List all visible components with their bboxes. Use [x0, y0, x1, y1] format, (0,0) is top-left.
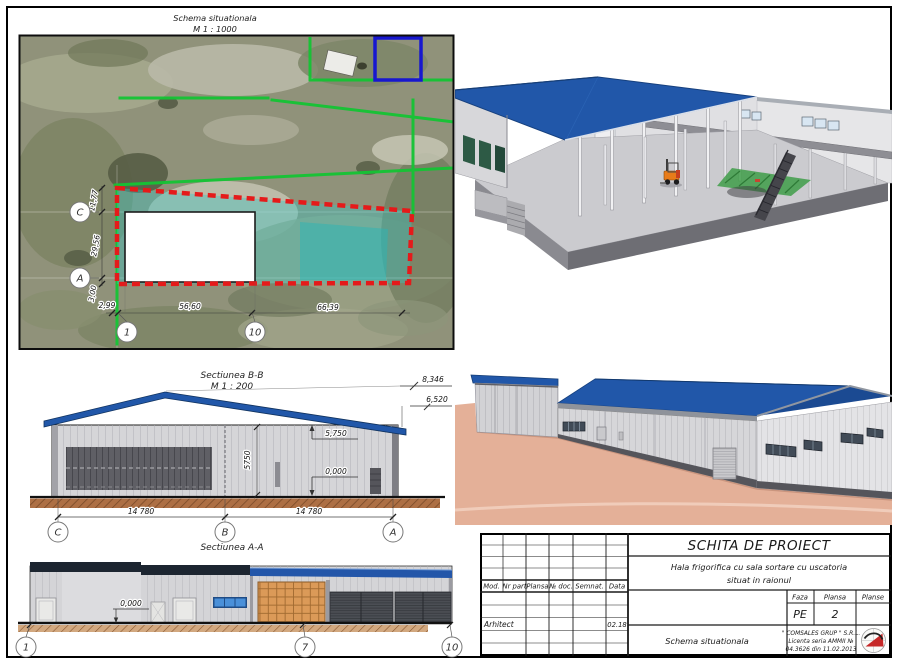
- section-bb-drawing: [30, 392, 445, 508]
- col-header: Mod.: [483, 583, 500, 591]
- date-value: 02.18: [607, 621, 627, 629]
- hall-interior: [455, 77, 892, 270]
- equipment: [370, 468, 381, 494]
- site-overlay-inner: [300, 222, 388, 280]
- axis-label: A: [389, 528, 397, 539]
- drawing-sheet: { "site_plan": { "title": "Schema situat…: [0, 0, 898, 667]
- section-aa-panel: Sectiunea A-A: [0, 540, 470, 667]
- section-bb-scale: M 1 : 200: [211, 382, 254, 392]
- hall-exterior: [455, 375, 892, 525]
- section-aa-title: Sectiunea A-A: [200, 543, 263, 553]
- aerial-photo: [18, 35, 455, 350]
- project-name-line2: situat in raionul: [727, 575, 792, 585]
- axis-label: C: [55, 528, 62, 539]
- col-header: Nr part: [503, 583, 527, 591]
- axis-label: B: [222, 528, 229, 539]
- elev-label: 8,346: [422, 375, 444, 384]
- role-label: Arhitect: [483, 620, 515, 629]
- axis-label: C: [77, 208, 84, 219]
- elev-label: 6,520: [426, 395, 448, 404]
- level-label: 0,000: [120, 599, 142, 608]
- title-block: SCHITA DE PROIECT Hala frigorifica cu sa…: [480, 533, 891, 656]
- dim-label: 2,99: [99, 301, 116, 310]
- site-plan-panel: Schema situationala M 1 : 1000: [18, 8, 455, 350]
- plansa-label: Plansa: [824, 594, 846, 602]
- project-name-line1: Hala frigorifica cu sala sortare cu usca…: [671, 562, 847, 572]
- sheet-name: Schema situationala: [665, 636, 748, 646]
- site-plan-scale: M 1 : 1000: [193, 24, 237, 34]
- exterior-stairs: [507, 200, 525, 236]
- axis-label: 10: [446, 643, 459, 654]
- col-header: № doc.: [548, 583, 573, 591]
- axis-label: 1: [124, 328, 130, 339]
- dim-label: 14 780: [296, 507, 322, 516]
- axis-label: A: [76, 274, 84, 285]
- faza-label: Faza: [792, 594, 808, 602]
- company-line3: 04.3626 din 11.02.2013: [786, 647, 857, 653]
- exterior-3d-render: [455, 360, 892, 525]
- tree-spot: [357, 63, 367, 70]
- door: [173, 598, 196, 623]
- building-footprint: [125, 212, 255, 282]
- level-label: 5,750: [325, 429, 347, 438]
- interior-3d-render: [455, 40, 892, 340]
- col-header: Semnat.: [575, 583, 603, 591]
- planse-label: Planse: [862, 594, 884, 602]
- axis-label: 10: [249, 328, 262, 339]
- company-line1: " COMSALES GRUP " S.R.L.: [782, 631, 861, 637]
- doc-title: SCHITA DE PROIECT: [688, 538, 832, 554]
- dim-label: 66,39: [317, 303, 339, 312]
- section-bb-title: Sectiunea B-B: [201, 371, 264, 381]
- axis-label: 1: [23, 643, 29, 654]
- axis-label: 7: [302, 643, 309, 654]
- col-header: Data: [609, 583, 625, 591]
- col-header: Plansa: [526, 583, 548, 591]
- site-plan-title: Schema situationala: [173, 13, 256, 23]
- level-label: 0,000: [325, 467, 347, 476]
- dim-label: 5750: [243, 450, 252, 469]
- dim-label: 14 780: [128, 507, 154, 516]
- plansa-value: 2: [832, 608, 839, 621]
- section-aa-drawing: [18, 562, 452, 632]
- section-bb-panel: Sectiunea B-B M 1 : 200 5,750 0,000: [0, 365, 460, 550]
- parapet-band: [30, 562, 141, 572]
- faza-value: PE: [793, 608, 807, 621]
- company-logo: [862, 629, 886, 653]
- company-line2: Licenta seria AMMII №: [788, 638, 853, 645]
- dim-label: 56,60: [179, 302, 201, 311]
